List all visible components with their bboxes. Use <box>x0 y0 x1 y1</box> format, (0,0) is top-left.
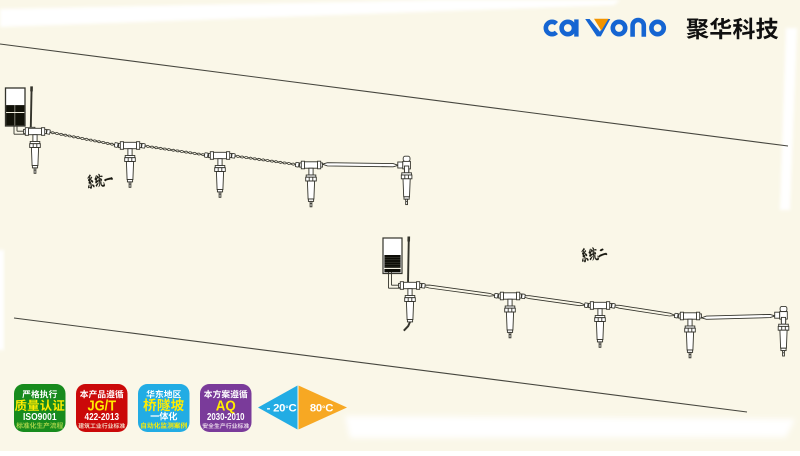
svg-text:- 20°C: - 20°C <box>267 402 297 414</box>
svg-text:ISO9001: ISO9001 <box>23 412 57 423</box>
svg-text:80°C: 80°C <box>310 402 333 414</box>
svg-text:422-2013: 422-2013 <box>85 412 120 423</box>
svg-text:2030-2010: 2030-2010 <box>207 412 245 423</box>
